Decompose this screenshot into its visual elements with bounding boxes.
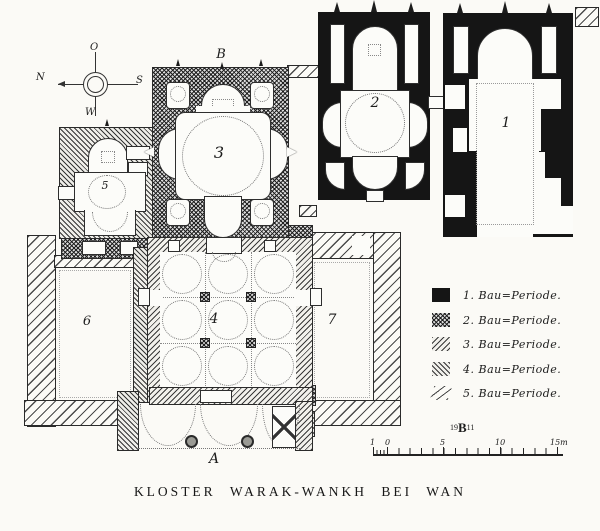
building1-west-chamber-2 xyxy=(453,128,467,152)
building3-spire-apse-icon xyxy=(220,62,224,69)
hatch-stub-b3-b2 xyxy=(288,66,318,77)
legend-swatch-period2 xyxy=(432,313,450,327)
building4-pier-1 xyxy=(200,292,210,302)
hatch-stub-left-of-b2 xyxy=(300,206,316,216)
hall-column-1 xyxy=(185,435,198,448)
building4-west-door xyxy=(148,290,162,306)
section-b-label: B xyxy=(212,48,230,61)
hatch-stub-top-right xyxy=(576,8,598,26)
scalebar-baseline xyxy=(373,454,563,456)
building4-dome-1 xyxy=(162,254,202,294)
monogram-suffix: 11 xyxy=(467,423,475,432)
hall-staircase xyxy=(272,406,296,448)
building4-pier-2 xyxy=(246,292,256,302)
building1-west-chamber-3 xyxy=(445,195,465,217)
courtyard7-number: 7 xyxy=(324,313,340,327)
building1-spire-e-icon xyxy=(546,3,552,13)
scale-bar: 1 0 5 10 15m xyxy=(373,444,565,462)
building1-tower-west xyxy=(453,26,469,74)
compass-west-label: W xyxy=(85,107,95,118)
legend-label-period5: 5. Bau=Periode. xyxy=(463,387,561,400)
building5-altar-mark xyxy=(101,151,115,163)
courtyard7-inner-dotted-line xyxy=(314,262,370,398)
scalebar-tick-15 xyxy=(557,447,558,456)
legend-row-3: 3. Bau=Periode. xyxy=(432,337,572,352)
building1-tower-east xyxy=(541,26,557,74)
legend-row-4: 4. Bau=Periode. xyxy=(432,362,572,377)
building1-apse xyxy=(477,28,533,82)
building1-spire-w-icon xyxy=(457,3,463,13)
building1-step-2 xyxy=(533,178,561,206)
building4-dome-7 xyxy=(162,346,202,386)
building4-pier-3 xyxy=(200,338,210,348)
legend-label-period4: 4. Bau=Periode. xyxy=(463,363,561,376)
courtyard7-east-wall xyxy=(374,233,400,425)
building4-dome-3 xyxy=(254,254,294,294)
scalebar-fine-ticks xyxy=(373,450,387,454)
building4-north-niche-w xyxy=(168,240,180,252)
building5-number: 5 xyxy=(98,180,112,191)
building3-tower-nw-dome xyxy=(170,86,186,102)
legend-row-1: 1. Bau=Periode. xyxy=(432,288,572,303)
building4-dome-8 xyxy=(208,346,248,386)
scalebar-label-0: 0 xyxy=(385,438,390,447)
building2-south-door xyxy=(366,190,384,202)
sheet-title: KLOSTER WARAK-WANKH BEI WAN xyxy=(0,484,600,500)
courtyard6-inner-dotted-line xyxy=(59,270,131,398)
building1-step-3 xyxy=(533,206,573,234)
legend-swatch-period4 xyxy=(432,362,450,376)
compass-south-label: S xyxy=(136,75,143,86)
scalebar-label-5: 5 xyxy=(440,438,445,447)
building3-south-passage xyxy=(204,196,242,238)
hall-south-dotted-line xyxy=(138,448,300,449)
scalebar-tick-10 xyxy=(500,447,501,456)
building4-dome-4 xyxy=(162,300,202,340)
monogram: 19B11 xyxy=(450,419,474,437)
building3-tower-se-dome xyxy=(254,203,270,219)
monogram-prefix: 19 xyxy=(450,423,458,432)
building2-number: 2 xyxy=(367,96,383,110)
building3-tower-ne-dome xyxy=(254,86,270,102)
legend-label-period3: 3. Bau=Periode. xyxy=(463,338,561,351)
legend-swatch-period3 xyxy=(432,337,450,351)
building2-spire-e-icon xyxy=(408,2,414,12)
building3-spire-nw-icon xyxy=(176,59,180,66)
building4-dome-6 xyxy=(254,300,294,340)
building4-number: 4 xyxy=(206,312,222,326)
building3-number: 3 xyxy=(211,145,227,161)
legend-swatch-period5 xyxy=(430,386,453,400)
building2-tower-west xyxy=(330,24,345,84)
monogram-initial: B xyxy=(458,420,467,435)
building1-spire-c-icon xyxy=(502,1,508,13)
building5-west-porch xyxy=(58,186,75,200)
scalebar-minor-ticks xyxy=(387,448,558,454)
compass-inner-ring xyxy=(87,76,104,93)
hall-west-wall xyxy=(118,392,138,450)
building4-east-porch xyxy=(310,288,322,306)
building3-tower-sw-dome xyxy=(170,203,186,219)
building4-north-niche-e xyxy=(264,240,276,252)
courtyard6-number: 6 xyxy=(80,315,94,328)
building3-east-spike-icon xyxy=(287,147,297,157)
building4-grid-v2 xyxy=(251,252,252,388)
building4-pier-4 xyxy=(246,338,256,348)
plan-sheet: O S W N xyxy=(0,0,600,531)
legend-label-period1: 1. Bau=Periode. xyxy=(463,289,561,302)
compass-north-arrow-icon xyxy=(58,81,65,87)
building1-number: 1 xyxy=(498,116,514,130)
building2-altar-mark xyxy=(368,44,381,56)
scalebar-label-10: 10 xyxy=(495,438,505,447)
scalebar-label-1: 1 xyxy=(370,438,375,447)
scalebar-tick-5 xyxy=(443,447,444,456)
courtyard7-south-wall xyxy=(305,401,400,425)
building3-west-spike-icon xyxy=(144,147,154,157)
legend-swatch-period1 xyxy=(432,288,450,302)
building4-grid-h1 xyxy=(160,297,296,298)
section-a-label: A xyxy=(205,452,223,466)
hall-column-2 xyxy=(241,435,254,448)
building5-spire-icon xyxy=(105,119,109,126)
compass-north-label: N xyxy=(36,72,45,83)
building2-tower-east xyxy=(404,24,419,84)
building4-grid-h2 xyxy=(160,343,296,344)
building1-west-chamber-1 xyxy=(445,85,465,109)
legend-label-period2: 2. Bau=Periode. xyxy=(463,314,561,327)
scalebar-tick-0 xyxy=(387,447,388,456)
north-range-room-1 xyxy=(82,241,106,255)
scalebar-tick-1 xyxy=(373,447,374,456)
legend: 1. Bau=Periode. 2. Bau=Periode. 3. Bau=P… xyxy=(432,288,572,411)
scalebar-label-15m: 15m xyxy=(550,438,568,447)
legend-row-2: 2. Bau=Periode. xyxy=(432,313,572,328)
building2-spire-w-icon xyxy=(334,2,340,12)
building1-older-outline-dotted xyxy=(476,83,534,225)
compass-east-label: O xyxy=(90,42,98,53)
courtyard7-north-gate xyxy=(352,236,370,255)
hall-north-portal xyxy=(200,390,232,403)
building4-west-porch xyxy=(138,288,150,306)
building1-east-arm xyxy=(539,79,561,109)
building3-spire-ne-icon xyxy=(259,59,263,66)
legend-row-5: 5. Bau=Periode. xyxy=(432,386,572,401)
building1-south-exit xyxy=(477,226,533,237)
building2-apse xyxy=(352,26,398,92)
building1-step-1 xyxy=(533,152,545,178)
building2-spire-c-icon xyxy=(371,0,377,12)
building4-dome-9 xyxy=(254,346,294,386)
courtyard6-west-wall xyxy=(28,236,55,426)
